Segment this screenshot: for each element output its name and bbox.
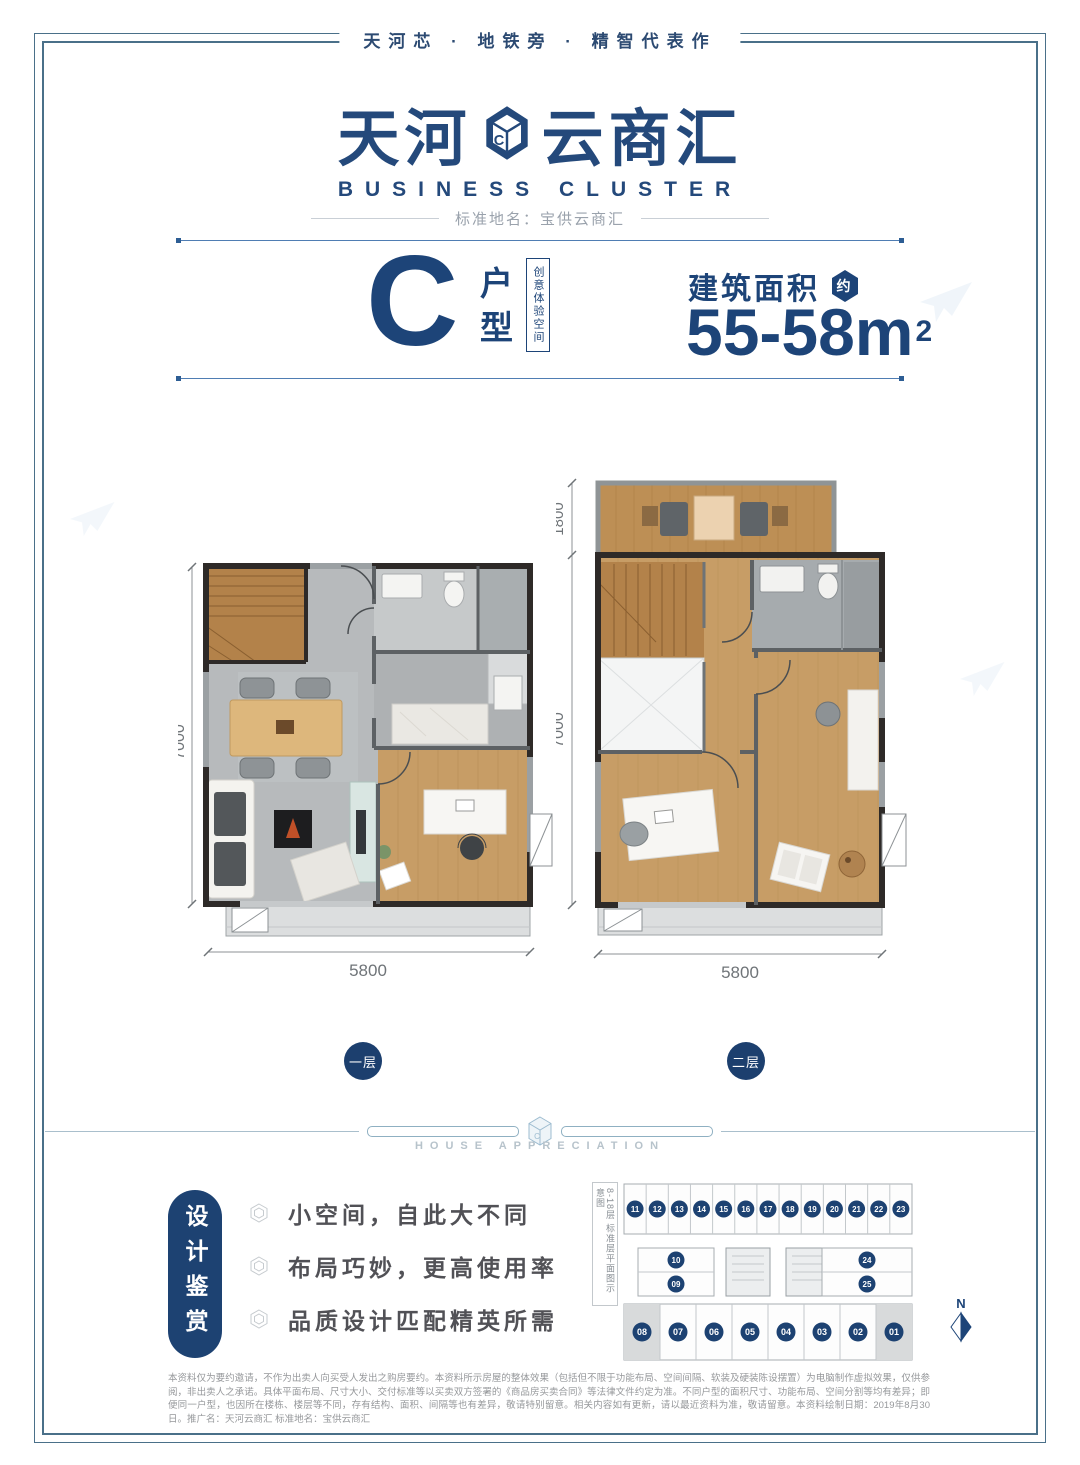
compass-icon	[947, 1311, 975, 1343]
floor-plan-second-svg: 1800 7000 5800	[556, 462, 936, 989]
standard-name: 标准地名：宝供云商汇	[455, 208, 625, 229]
svg-text:约: 约	[837, 278, 854, 294]
unit-number: 15	[719, 1205, 728, 1214]
right-rule	[641, 218, 769, 219]
unit-number: 17	[764, 1205, 773, 1214]
ac-platform	[882, 814, 906, 866]
unit-number: 02	[853, 1327, 863, 1337]
bullet-row: 布局巧妙，更高使用率	[250, 1247, 600, 1285]
left-rule	[311, 218, 439, 219]
balcony	[226, 904, 530, 936]
dim-1800: 1800	[556, 502, 567, 535]
bullet-text: 品质设计匹配精英所需	[288, 1302, 558, 1336]
disclaimer-text: 本资料仅为要约邀请，不作为出卖人向买受人发出之购房要约。本资料所示房屋的整体效果…	[168, 1372, 930, 1426]
unit-number: 19	[808, 1205, 817, 1214]
unit-number: 20	[830, 1205, 839, 1214]
floor-plan-second: 1800 7000 5800	[556, 462, 936, 994]
divider-line-right	[721, 1131, 1035, 1132]
paper-plane-watermark	[960, 660, 1008, 698]
section-rule-top	[178, 240, 902, 241]
unit-number: 24	[863, 1256, 872, 1265]
brand-subtitle: BUSINESS CLUSTER	[0, 178, 1080, 202]
unit-number: 25	[863, 1280, 872, 1289]
kitchen	[374, 652, 530, 748]
hexagon-bullet-icon	[250, 1203, 268, 1223]
divider-capsule-right	[561, 1126, 713, 1137]
unit-number: 08	[637, 1327, 647, 1337]
bullet-text: 布局巧妙，更高使用率	[288, 1249, 558, 1283]
fireplace	[274, 810, 312, 848]
ac-platform	[530, 814, 552, 866]
plate-side-label: 8-18层 标准层平面图示意图	[592, 1182, 618, 1306]
unit-number: 09	[672, 1280, 681, 1289]
unit-letter: C	[366, 238, 458, 366]
divider-line-left	[45, 1131, 359, 1132]
section-rule-bottom	[178, 378, 902, 379]
staircase	[598, 562, 704, 658]
brand-name-right: 云商汇	[542, 88, 743, 178]
unit-number: 14	[697, 1205, 706, 1214]
unit-number: 12	[653, 1205, 662, 1214]
divider-caption: HOUSE APPRECIATION	[0, 1140, 1080, 1152]
dim-5800: 5800	[721, 963, 759, 982]
floor-plan-first-svg: 7000 5800	[178, 552, 558, 984]
unit-number: 16	[741, 1205, 750, 1214]
north-label: N	[946, 1296, 976, 1311]
divider-capsule-left	[367, 1126, 519, 1137]
staircase	[206, 566, 306, 662]
bullet-row: 品质设计匹配精英所需	[250, 1300, 600, 1338]
closet	[478, 566, 530, 652]
bullet-text: 小空间，自此大不同	[288, 1196, 531, 1230]
hexagon-bullet-icon	[250, 1256, 268, 1276]
bathroom	[374, 566, 478, 652]
unit-number: 05	[745, 1327, 755, 1337]
area-value: 55-58m2	[686, 294, 932, 370]
unit-number: 06	[709, 1327, 719, 1337]
first-floor-badge: 一层	[344, 1042, 382, 1080]
square-exponent: 2	[916, 315, 933, 348]
unit-number: 10	[672, 1256, 681, 1265]
unit-number: 04	[781, 1327, 791, 1337]
desk-chair	[620, 822, 648, 846]
unit-number: 03	[817, 1327, 827, 1337]
unit-number: 23	[896, 1205, 905, 1214]
dim-7000: 7000	[178, 724, 188, 760]
design-bullet-list: 小空间，自此大不同 布局巧妙，更高使用率 品质设计匹配精英所需	[250, 1194, 600, 1353]
unit-number: 22	[874, 1205, 883, 1214]
north-indicator: N	[946, 1296, 976, 1346]
svg-text:C: C	[493, 133, 510, 149]
unit-number: 01	[889, 1327, 899, 1337]
brand-logo: 天河 C 云商汇	[0, 88, 1080, 178]
bullet-row: 小空间，自此大不同	[250, 1194, 600, 1232]
second-floor-badge: 二层	[727, 1042, 765, 1080]
standard-name-row: 标准地名：宝供云商汇	[0, 208, 1080, 229]
paper-plane-watermark	[70, 500, 118, 538]
hexagon-bullet-icon	[250, 1309, 268, 1329]
sofa	[208, 780, 254, 898]
unit-number: 21	[852, 1205, 861, 1214]
cube-logo-icon: C	[482, 105, 532, 161]
creative-space-badge: 创意体验空间	[526, 258, 550, 352]
dim-7000: 7000	[556, 712, 567, 748]
unit-number: 13	[675, 1205, 684, 1214]
brand-name-left: 天河	[337, 88, 471, 178]
top-tagline: 天河芯 · 地铁旁 · 精智代表作	[339, 28, 740, 56]
unit-number: 18	[786, 1205, 795, 1214]
dim-5800: 5800	[349, 961, 387, 980]
unit-type-label: 户 型	[480, 262, 513, 350]
void-opening	[598, 658, 704, 752]
design-review-tab: 设计鉴赏	[168, 1190, 222, 1358]
unit-number: 11	[631, 1205, 640, 1214]
floor-plan-first: 7000 5800	[178, 552, 558, 989]
key-plan: 11121314151617181920212223 1009 2425 080…	[618, 1176, 920, 1373]
terrace	[598, 483, 834, 555]
unit-number: 07	[673, 1327, 683, 1337]
key-plan-svg: 11121314151617181920212223 1009 2425 080…	[618, 1176, 920, 1368]
balcony	[598, 905, 882, 935]
bathroom	[752, 560, 882, 650]
poster-page: 天河芯 · 地铁旁 · 精智代表作 天河 C 云商汇 BUSINESS CLUS…	[0, 0, 1080, 1465]
